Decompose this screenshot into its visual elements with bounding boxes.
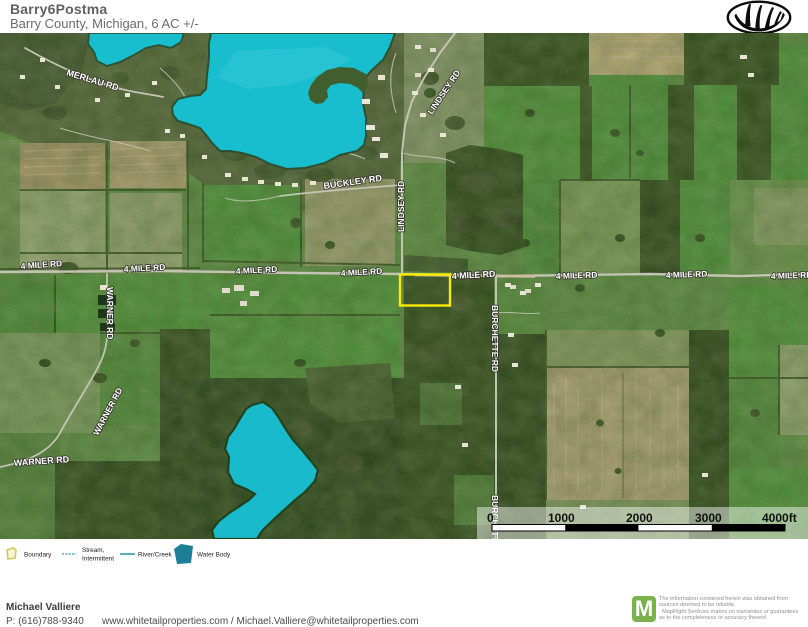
svg-text:Water Body: Water Body: [197, 552, 231, 559]
svg-text:4 MILE RD: 4 MILE RD: [556, 270, 598, 281]
svg-text:Intermittent: Intermittent: [82, 556, 114, 563]
svg-text:4 MILE RD: 4 MILE RD: [666, 269, 708, 280]
svg-text:River/Creek: River/Creek: [138, 552, 173, 559]
svg-text:2000: 2000: [626, 511, 653, 525]
svg-text:4000ft: 4000ft: [762, 511, 797, 525]
svg-text:3000: 3000: [695, 511, 722, 525]
svg-text:Boundary: Boundary: [24, 552, 52, 559]
svg-text:Stream,: Stream,: [82, 547, 105, 554]
svg-text:LINDSEY RD: LINDSEY RD: [396, 181, 406, 232]
svg-text:BURCHETTE RD: BURCHETTE RD: [490, 305, 500, 372]
svg-text:0: 0: [487, 511, 494, 525]
svg-text:WARNER RD: WARNER RD: [105, 287, 115, 339]
svg-text:4 MILE RD: 4 MILE RD: [771, 270, 808, 281]
svg-text:1000: 1000: [548, 511, 575, 525]
